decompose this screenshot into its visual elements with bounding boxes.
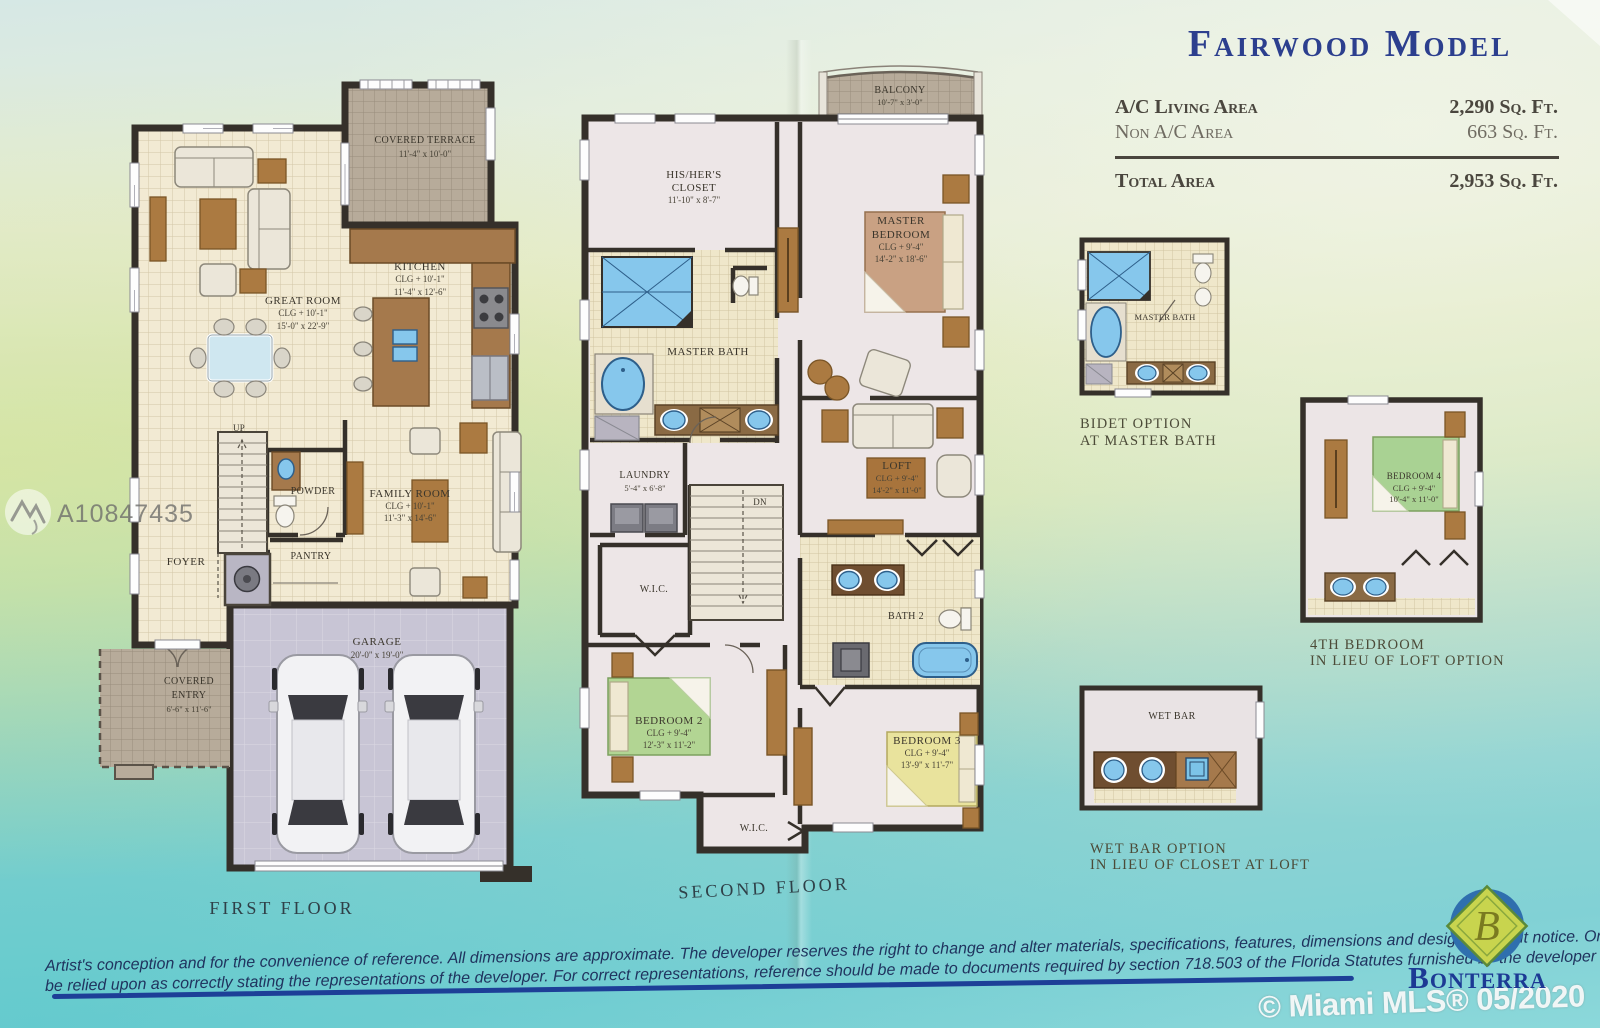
area-divider [1115,156,1559,159]
room-dims-covered-terrace: 11'-4" x 10'-0" [399,150,451,159]
area-value-ac: 2,290 Sq. Ft. [1449,96,1558,119]
room-dims-master-bedroom: 14'-2" x 18'-6" [875,255,928,264]
room-label-wic: W.I.C. [640,585,668,595]
bedroom4-option-caption-2: IN LIEU OF LOFT OPTION [1310,654,1505,670]
room-dims-garage: 20'-0" x 19'-0" [351,651,404,660]
option-label-wetbar: WET BAR [1148,712,1195,722]
bidet-option-plan [1055,232,1235,412]
room-dims-great-room: 15'-0" x 22'-9" [277,322,330,331]
label-stairs-up: UP [233,424,245,433]
room-label-bedroom2: BEDROOM 2 [635,716,703,727]
room-label-great-room: GREAT ROOM [265,296,341,307]
room-label-pantry: PANTRY [291,552,332,562]
area-value-nonac: 663 Sq. Ft. [1467,121,1558,144]
bedroom4-option-caption-1: 4TH BEDROOM [1310,638,1425,654]
room-dims-loft: 14'-2" x 11'-0" [872,486,921,495]
master-shower [602,257,692,327]
wetbar-option-caption-1: WET BAR OPTION [1090,842,1227,858]
room-label-closet-1: HIS/HER'S [666,170,721,181]
room-clg-bedroom2: CLG + 9'-4" [647,729,692,738]
room-dims-laundry: 5'-4" x 6'-8" [624,484,665,493]
room-label-covered-terrace: COVERED TERRACE [374,136,475,146]
bonterra-wordmark: Bonterra [1360,960,1595,996]
room-clg-great-room: CLG + 10'-1" [278,309,327,318]
room-label-kitchen: KITCHEN [394,262,446,273]
brochure-page: COVERED TERRACE 11'-4" x 10'-0" KITCHEN … [0,0,1600,1028]
mls-logo-watermark [4,486,52,538]
area-label-total: Total Area [1115,170,1215,193]
area-value-total: 2,953 Sq. Ft. [1449,170,1558,193]
room-clg-bedroom3: CLG + 9'-4" [905,749,950,758]
wetbar-option-caption-2: IN LIEU OF CLOSET AT LOFT [1090,858,1310,874]
car-1 [269,655,367,853]
utility-closet [225,554,270,605]
room-label-balcony: BALCONY [874,86,925,96]
room-label-foyer: FOYER [167,557,206,568]
stairs-down [690,485,783,620]
room-dims-bedroom2: 12'-3" x 11'-2" [643,741,695,750]
room-clg-loft: CLG + 9'-4" [876,474,918,483]
bidet-option-caption-1: BIDET OPTION [1080,417,1192,433]
room-label-bedroom3: BEDROOM 3 [893,736,961,747]
area-label-nonac: Non A/C Area [1115,121,1233,144]
room-label-powder: POWDER [291,487,336,497]
area-row-total: Total Area 2,953 Sq. Ft. [1115,170,1558,193]
area-label-ac: A/C Living Area [1115,96,1258,119]
wetbar-tile-strip [1094,788,1236,803]
option-label-bedroom4: BEDROOM 4 [1387,472,1441,481]
room-label-master-bedroom-1: MASTER [877,216,925,227]
area-row-nonac: Non A/C Area 663 Sq. Ft. [1115,121,1558,144]
wetbar-fixtures [1094,752,1236,788]
room-label-covered-entry-2: ENTRY [172,691,207,701]
option-dims-bedroom4: 10'-4" x 11'-0" [1389,495,1438,504]
first-floor-caption: FIRST FLOOR [209,898,354,919]
room-clg-family-room: CLG + 10'-1" [385,502,434,511]
room-label-wic2: W.I.C. [740,824,768,834]
room-dims-bedroom3: 13'-9" x 11'-7" [901,761,953,770]
model-title: Fairwood Model [1100,22,1600,66]
room-label-covered-entry-1: COVERED [164,677,214,687]
option-clg-bedroom4: CLG + 9'-4" [1393,484,1435,493]
area-row-ac: A/C Living Area 2,290 Sq. Ft. [1115,96,1558,119]
room-label-family-room: FAMILY ROOM [369,489,450,500]
room-dims-balcony: 10'-7" x 3'-0" [877,98,922,107]
bidet-option-caption-2: AT MASTER BATH [1080,434,1217,450]
wetbar-option-plan [1068,682,1268,822]
room-label-closet-2: CLOSET [672,183,717,194]
room-label-loft: LOFT [882,461,912,472]
room-dims-covered-entry: 6'-6" x 11'-6" [166,705,211,714]
option-label-master-bath: MASTER BATH [1135,313,1196,322]
room-dims-kitchen: 11'-4" x 12'-6" [394,288,446,297]
car-2 [385,655,483,853]
room-label-garage: GARAGE [353,637,402,648]
listing-id-watermark: A10847435 [57,500,194,529]
room-dims-family-room: 11'-3" x 14'-6" [384,514,436,523]
room-clg-kitchen: CLG + 10'-1" [395,275,444,284]
bedroom4-option-plan [1288,392,1488,632]
room-label-master-bath: MASTER BATH [667,347,749,358]
room-label-laundry: LAUNDRY [619,471,670,481]
room-label-bath2: BATH 2 [888,612,924,622]
bonterra-monogram: B [1474,904,1500,950]
room-dims-closet: 11'-10" x 8'-7" [668,196,720,205]
wetbar-windows [1256,702,1264,738]
label-stairs-dn: DN [753,498,767,507]
room-clg-master-bedroom: CLG + 9'-4" [879,243,924,252]
room-label-master-bedroom-2: BEDROOM [872,230,931,241]
